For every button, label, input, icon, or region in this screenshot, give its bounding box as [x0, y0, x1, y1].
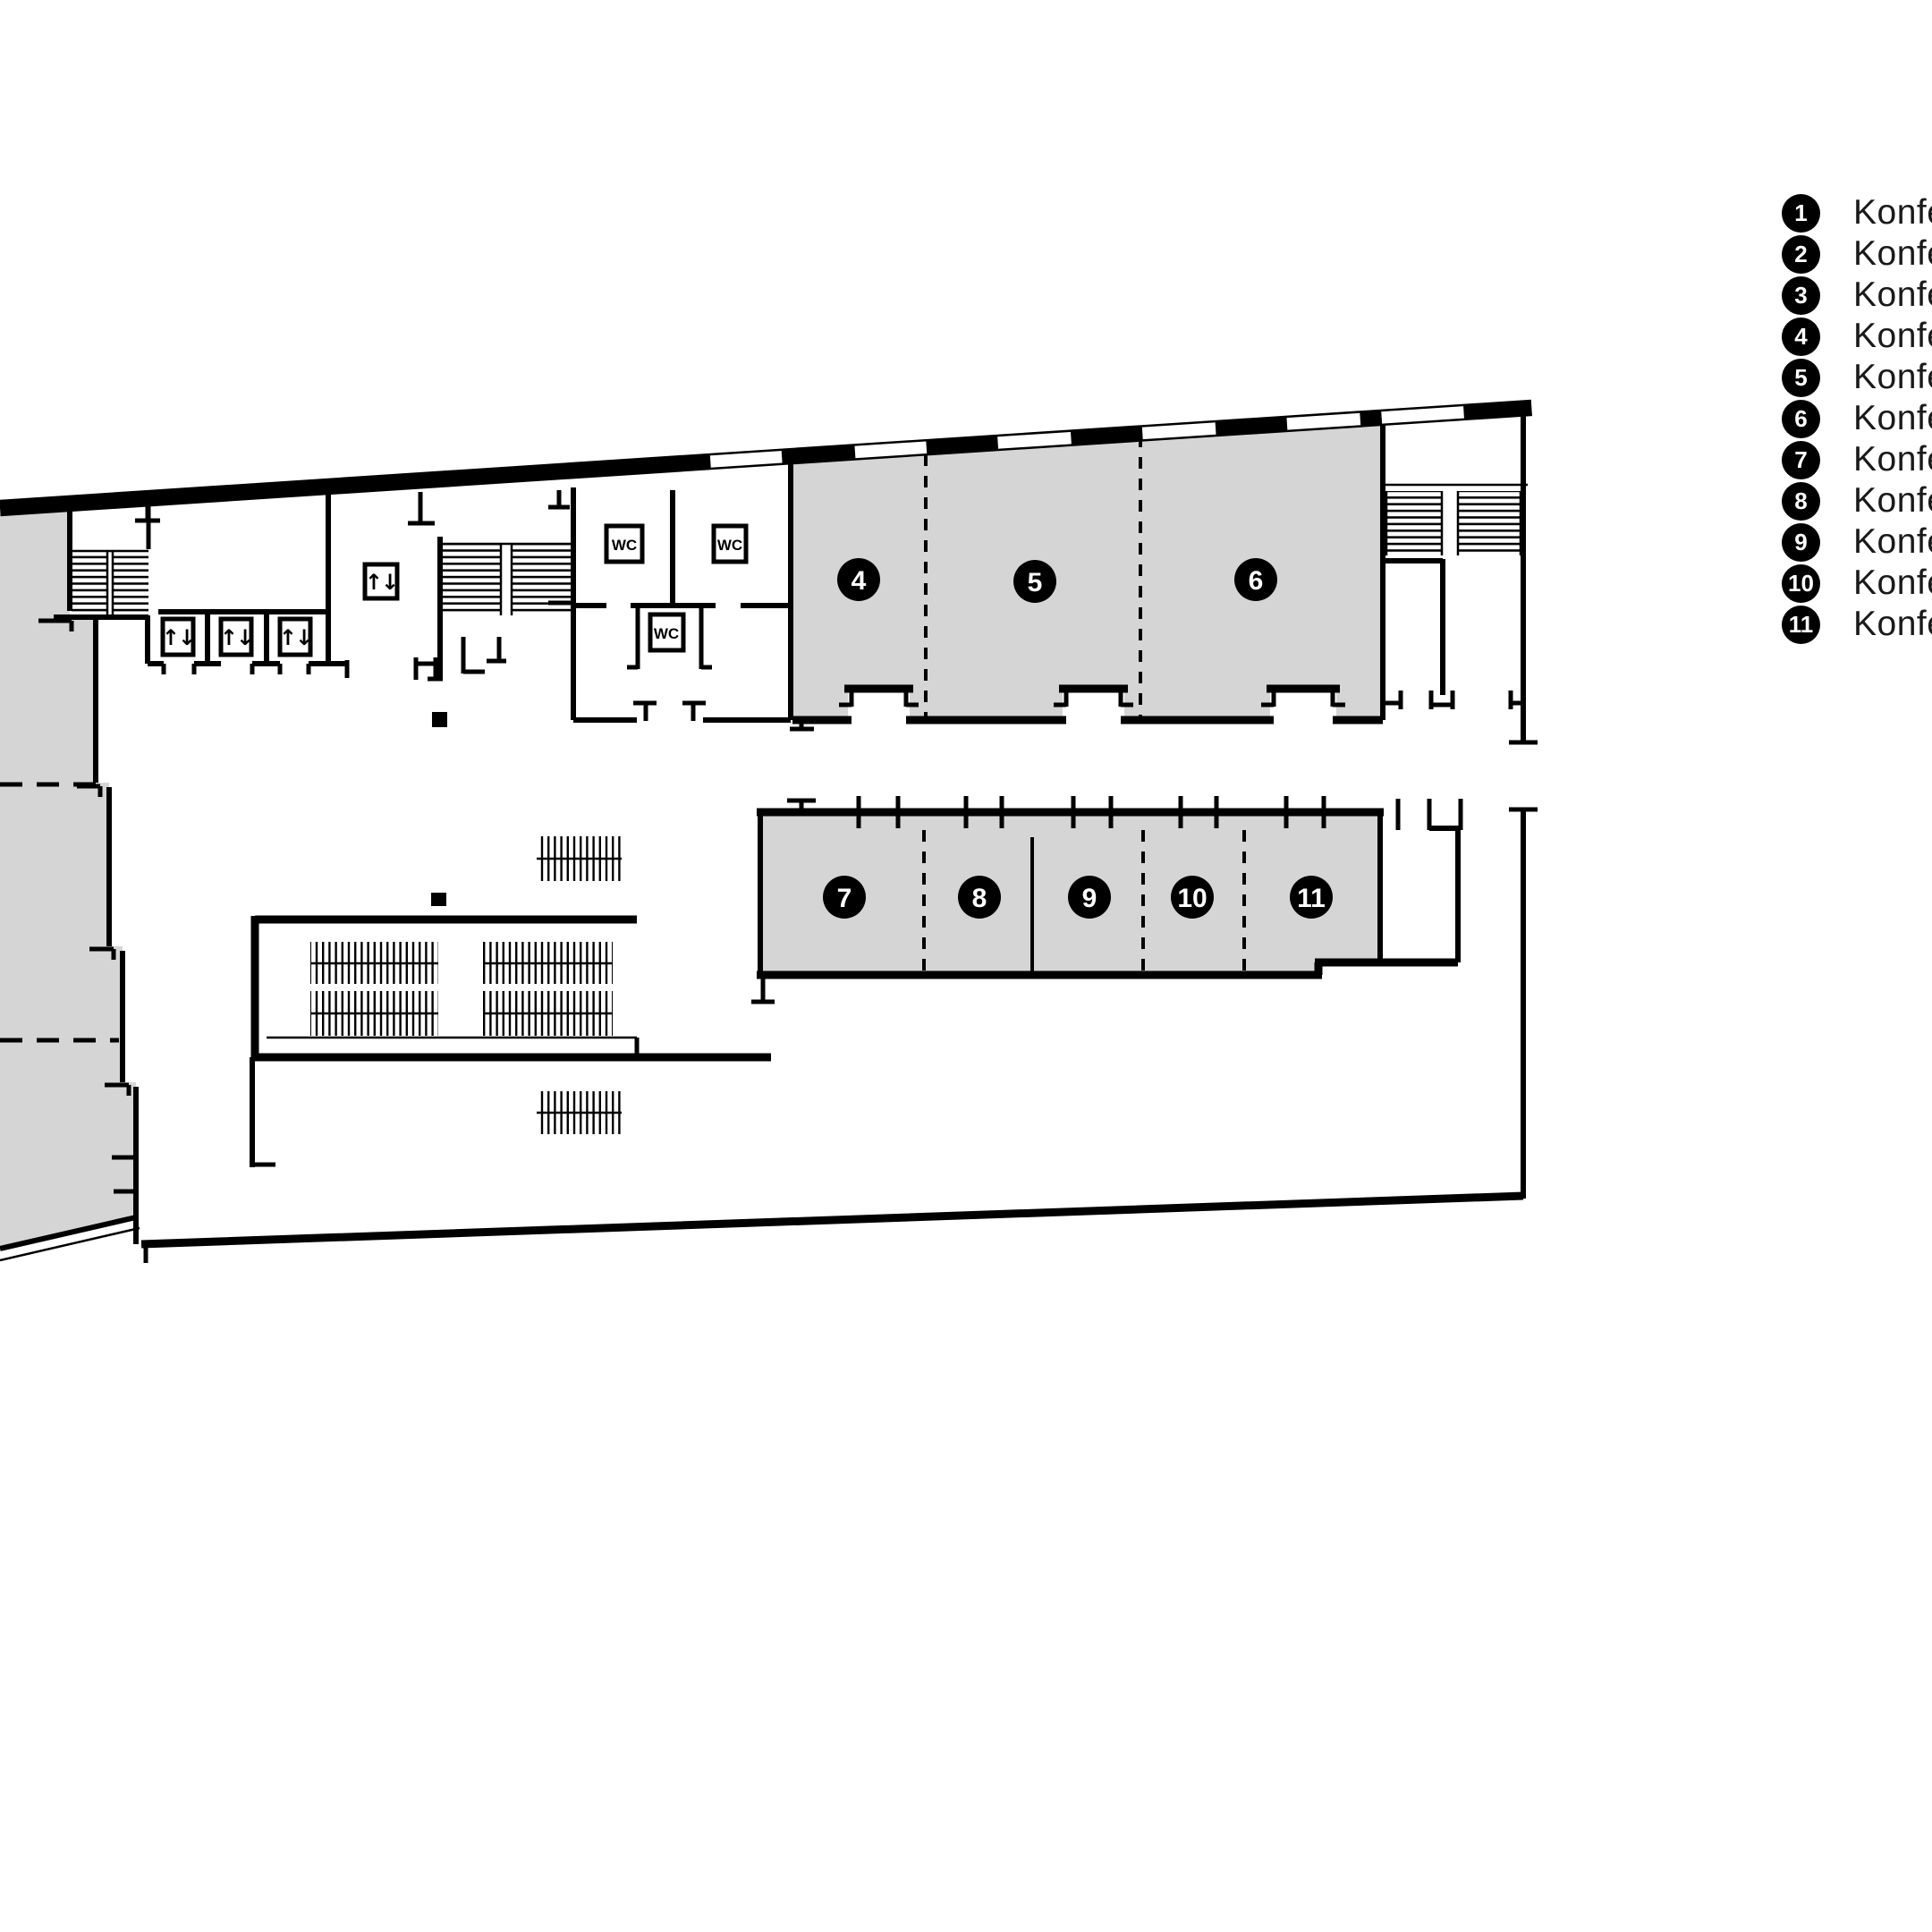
floor-plan-drawing: ↑↓ ↑↓ ↑↓ ↑↓ WC WC WC 4 5 6 7 8 9 10 11 — [0, 0, 1932, 1932]
room-badge-6: 6 — [1249, 566, 1264, 596]
column — [431, 893, 446, 906]
legend-number-badge: 7 — [1782, 441, 1820, 479]
stair-flight — [113, 551, 148, 617]
room-badge-11: 11 — [1297, 884, 1326, 913]
legend-label: Konferenzraum — [1853, 605, 1932, 644]
wide-step-band — [310, 991, 438, 1036]
wide-step-band — [483, 991, 613, 1036]
legend-label: Konferenzraum — [1853, 481, 1932, 521]
railing-hatch-upper — [537, 836, 622, 881]
legend-label: Konferenzraum — [1853, 234, 1932, 274]
railing-hatch-lower — [537, 1091, 622, 1134]
stair-flight — [72, 551, 107, 617]
legend-item-10: 10 Konferenzraum — [1782, 563, 1932, 603]
legend-number-badge: 10 — [1782, 564, 1820, 603]
legend-item-7: 7 Konferenzraum — [1782, 440, 1932, 479]
elevator-icon: ↑↓ — [279, 625, 311, 650]
elevator-icon: ↑↓ — [220, 625, 252, 650]
staircase-top-left — [72, 551, 148, 617]
elevator-icon: ↑↓ — [162, 625, 194, 650]
legend-label: Konferenzraum — [1853, 440, 1932, 479]
wc-label: WC — [612, 537, 637, 554]
elevator-icon: ↑↓ — [365, 570, 397, 595]
legend-item-9: 9 Konferenzraum — [1782, 522, 1932, 562]
room-fills — [0, 424, 1383, 1249]
room-badge-8: 8 — [972, 884, 987, 913]
floor-plan-page: { "legend": { "items": [ {"number":"1","… — [0, 0, 1932, 1932]
room-badge-4: 4 — [852, 566, 867, 596]
staircase-mid-left — [442, 544, 572, 615]
wc-label: WC — [654, 625, 679, 642]
room-badge-9: 9 — [1082, 884, 1097, 913]
legend-number-badge: 11 — [1782, 606, 1820, 644]
stair-flight — [1458, 491, 1521, 555]
staircase-top-right — [1386, 491, 1521, 555]
wide-step-band — [483, 942, 613, 984]
legend-item-8: 8 Konferenzraum — [1782, 481, 1932, 521]
legend-number-badge: 9 — [1782, 523, 1820, 562]
legend-label: Konferenzraum — [1853, 399, 1932, 438]
stair-flight — [1386, 491, 1442, 555]
legend-item-5: 5 Konferenzraum — [1782, 358, 1932, 397]
legend-number-badge: 2 — [1782, 235, 1820, 274]
facade-segment — [1360, 411, 1382, 427]
legend-number-badge: 1 — [1782, 194, 1820, 233]
conference-rooms-4-6 — [792, 424, 1383, 720]
legend-number-badge: 5 — [1782, 359, 1820, 397]
wide-step-band — [310, 942, 438, 984]
column — [432, 712, 447, 727]
legend-item-11: 11 Konferenzraum — [1782, 605, 1932, 644]
legend-item-6: 6 Konferenzraum — [1782, 399, 1932, 438]
legend-label: Konferenzraum — [1853, 563, 1932, 603]
legend-number-badge: 4 — [1782, 318, 1820, 356]
legend-label: Konferenzraum — [1853, 317, 1932, 356]
wc-label: WC — [717, 537, 742, 554]
legend-number-badge: 3 — [1782, 276, 1820, 315]
foyer-wide-steps — [310, 836, 622, 1134]
legend-label: Konferenzraum — [1853, 275, 1932, 315]
legend-item-4: 4 Konferenzraum — [1782, 317, 1932, 356]
facade-segment — [0, 454, 711, 515]
legend-label: Konferenzraum — [1853, 358, 1932, 397]
legend-label: Konferenzraum — [1853, 193, 1932, 233]
legend-item-2: 2 Konferenzraum — [1782, 234, 1932, 274]
stair-flight — [442, 544, 501, 615]
stair-flight — [512, 544, 572, 615]
room-badge-5: 5 — [1028, 568, 1043, 597]
legend-label: Konferenzraum — [1853, 522, 1932, 562]
wc-area: WC WC WC — [606, 526, 746, 650]
legend-item-3: 3 Konferenzraum — [1782, 275, 1932, 315]
legend-number-badge: 6 — [1782, 400, 1820, 438]
room-badge-7: 7 — [837, 884, 852, 913]
legend-item-1: 1 Konferenzraum — [1782, 193, 1932, 233]
room-badge-10: 10 — [1177, 884, 1207, 913]
legend-number-badge: 8 — [1782, 482, 1820, 521]
